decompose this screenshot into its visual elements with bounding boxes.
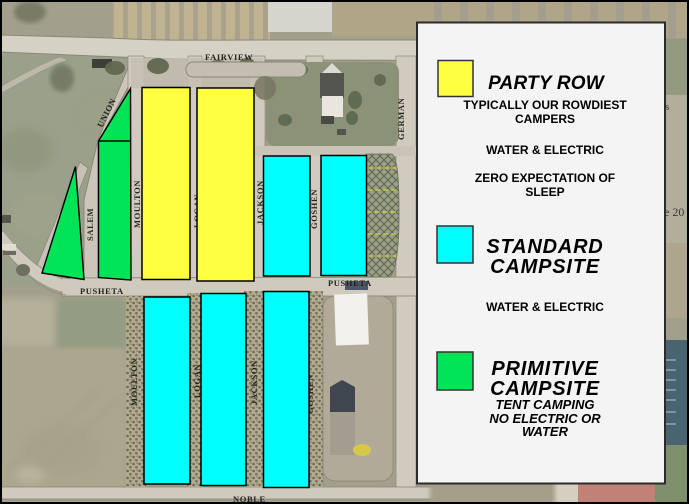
svg-text:STANDARD: STANDARD <box>486 236 603 258</box>
svg-text:TYPICALLY OUR ROWDIEST: TYPICALLY OUR ROWDIEST <box>463 98 627 112</box>
svg-text:MOULTON: MOULTON <box>129 358 139 406</box>
svg-text:WATER: WATER <box>522 424 569 439</box>
svg-text:PARTY ROW: PARTY ROW <box>488 73 606 94</box>
svg-text:FAIRVIEW: FAIRVIEW <box>205 52 253 62</box>
svg-text:TENT CAMPING: TENT CAMPING <box>496 397 595 412</box>
svg-text:SALEM: SALEM <box>85 208 95 241</box>
svg-text:PUSHETA: PUSHETA <box>80 286 124 296</box>
svg-text:CAMPERS: CAMPERS <box>515 112 575 126</box>
svg-text:GERMAN: GERMAN <box>396 97 406 140</box>
svg-text:JACKSON: JACKSON <box>249 360 259 405</box>
svg-text:PUSHETA: PUSHETA <box>328 278 372 288</box>
svg-text:CAMPSITE: CAMPSITE <box>490 256 600 278</box>
svg-text:WATER & ELECTRIC: WATER & ELECTRIC <box>486 300 604 314</box>
svg-text:MOULTON: MOULTON <box>132 180 142 228</box>
svg-text:WATER & ELECTRIC: WATER & ELECTRIC <box>486 143 604 157</box>
svg-text:ZERO EXPECTATION OF: ZERO EXPECTATION OF <box>475 171 615 185</box>
svg-text:PRIMITIVE: PRIMITIVE <box>491 358 598 380</box>
svg-text:SLEEP: SLEEP <box>525 185 564 199</box>
